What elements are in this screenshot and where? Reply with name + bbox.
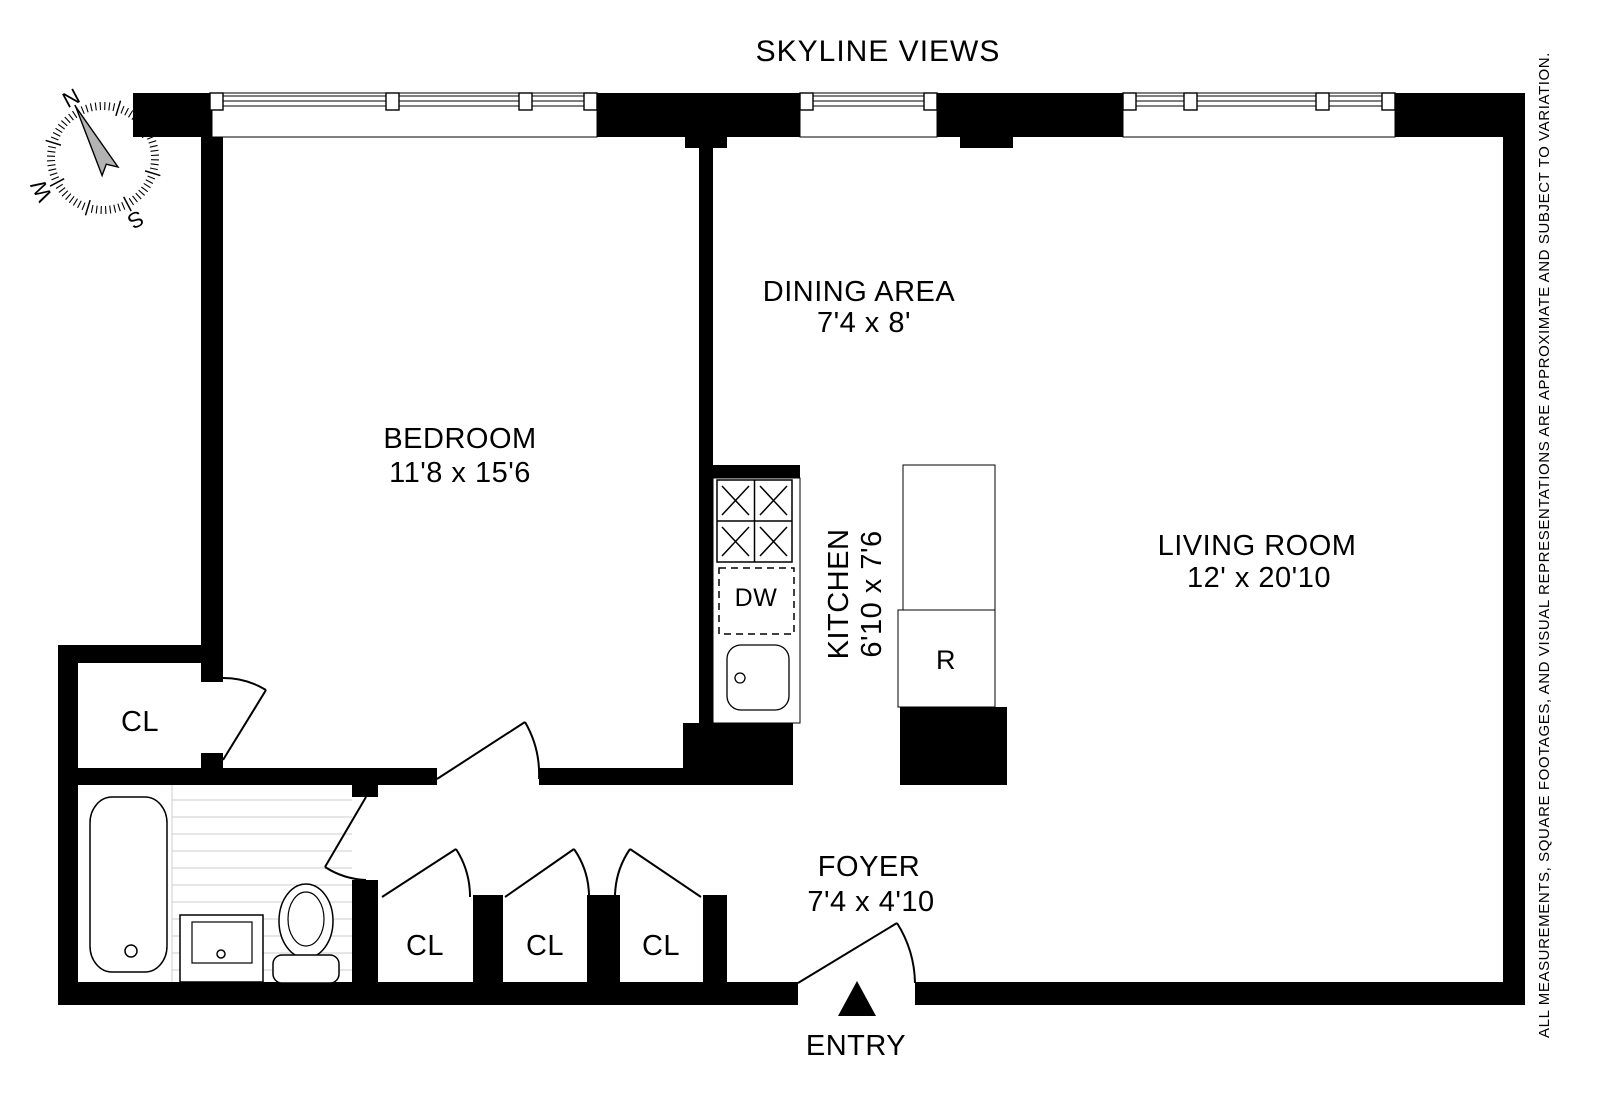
compass-tick <box>151 156 159 163</box>
foyer-closet-door-1 <box>382 849 470 897</box>
compass-tick <box>65 116 70 124</box>
compass-tick <box>93 206 100 214</box>
compass-tick <box>144 182 151 190</box>
wall-bottom-right <box>915 982 1525 1005</box>
foyer-closet-label-3: CL <box>642 930 680 962</box>
foyer-dims: 7'4 x 4'10 <box>807 886 934 918</box>
entry-arrow-icon <box>838 981 876 1016</box>
compass-tick <box>141 185 147 193</box>
wall-left-lower <box>58 645 78 1005</box>
compass-tick <box>93 103 99 111</box>
wall-kitchen-north <box>713 465 800 478</box>
window-living <box>1123 93 1395 137</box>
floor-plan-page: SKYLINE VIEWS <box>0 0 1600 1094</box>
foyer-closet-label-2: CL <box>526 930 564 962</box>
compass-tick <box>146 178 153 186</box>
compass-tick <box>69 113 74 121</box>
compass-tick <box>101 102 108 110</box>
compass-tick <box>117 204 122 212</box>
toilet-tank-icon <box>273 955 339 983</box>
compass-tick <box>56 126 63 134</box>
wall-pier-stub <box>960 137 1013 148</box>
refrigerator-label: R <box>936 645 956 675</box>
wall-kitchen-south <box>683 723 793 785</box>
compass-tick <box>149 139 157 144</box>
compass-tick <box>89 103 94 111</box>
compass-tick <box>106 102 113 110</box>
compass-tick <box>47 148 55 155</box>
stove-icon <box>717 480 792 562</box>
compass-tick <box>71 199 79 206</box>
wall-bottom-left <box>58 982 798 1005</box>
living-label: LIVING ROOM <box>1158 530 1357 562</box>
dining-label: DINING AREA <box>763 276 956 308</box>
compass-needle-icon <box>68 103 118 176</box>
compass-tick <box>81 106 85 113</box>
wall-closet-divider-2 <box>587 895 620 982</box>
foyer-label: FOYER <box>818 851 920 883</box>
compass-tick <box>148 174 155 182</box>
bedroom-dims: 11'8 x 15'6 <box>389 457 531 489</box>
wall-bedroom-south-east <box>539 768 699 785</box>
compass-tick <box>48 167 56 172</box>
compass-tick <box>47 153 55 160</box>
compass-tick <box>61 119 67 127</box>
wall-closet-jamb-bottom <box>201 753 223 770</box>
wall-right <box>1503 137 1525 1005</box>
bedroom-closet-door <box>223 678 266 760</box>
compass-tick <box>56 184 63 188</box>
page-title: SKYLINE VIEWS <box>756 35 1001 68</box>
kitchen-dims: 6'10 x 7'6 <box>856 530 888 657</box>
toilet-bowl-inner-icon <box>288 892 324 946</box>
compass-tick <box>64 194 72 200</box>
compass-tick <box>80 203 88 210</box>
wall-top-mid <box>597 93 800 137</box>
wall-top-pier <box>937 93 1123 137</box>
compass-tick <box>133 195 138 203</box>
compass-tick <box>151 148 159 154</box>
compass-rose-icon: N E S W <box>0 48 214 269</box>
compass-tick <box>88 205 95 213</box>
compass-tick <box>98 206 105 214</box>
wall-top-right-corner <box>1395 93 1525 137</box>
compass-tick <box>107 206 113 214</box>
wall-closet-top <box>58 645 223 663</box>
compass-tick <box>129 198 133 205</box>
wall-closet-divider-3 <box>703 895 727 982</box>
compass-tick <box>51 135 58 143</box>
vanity-drain-icon <box>217 950 225 958</box>
compass-tick <box>72 111 76 118</box>
compass-tick <box>112 205 117 213</box>
living-dims: 12' x 20'10 <box>1187 562 1331 594</box>
dishwasher-label: DW <box>735 584 778 612</box>
bathroom-fixtures <box>90 797 339 983</box>
wall-closet-jamb-top <box>201 663 223 682</box>
bathtub-drain-icon <box>125 945 137 957</box>
disclaimer-text: ALL MEASUREMENTS, SQUARE FOOTAGES, AND V… <box>1536 52 1553 1038</box>
wall-bath-door-jamb <box>352 785 378 797</box>
bedroom-label: BEDROOM <box>383 423 536 455</box>
wall-bedroom-west <box>201 137 223 663</box>
bedroom-closet-label: CL <box>121 706 159 738</box>
wall-bath-north <box>58 768 437 785</box>
compass-tick <box>48 143 56 150</box>
window-dining <box>800 93 937 137</box>
compass-tick <box>110 103 117 111</box>
compass-tick <box>53 130 60 138</box>
compass-north-label: N <box>58 83 84 113</box>
compass-tick <box>84 105 89 113</box>
foyer-closet-door-3 <box>615 849 701 897</box>
compass-tick <box>119 106 127 113</box>
floor-plan-svg: SKYLINE VIEWS <box>0 0 1600 1094</box>
compass-tick <box>50 172 58 177</box>
compass-tick <box>68 196 76 202</box>
compass-tick <box>97 102 103 110</box>
compass-south-label: S <box>123 205 148 234</box>
compass-tick <box>121 202 125 209</box>
kitchen-label: KITCHEN <box>823 529 855 660</box>
compass-tick <box>48 162 56 168</box>
wall-bath-east <box>352 880 378 982</box>
kitchen-sink-faucet-icon <box>735 673 745 683</box>
compass-tick <box>58 188 66 193</box>
compass-tick <box>58 123 64 131</box>
compass-tick <box>151 152 159 158</box>
entry-label: ENTRY <box>806 1030 906 1062</box>
compass-tick <box>139 189 145 197</box>
compass-tick <box>136 192 141 200</box>
wall-peninsula-south <box>900 707 1007 785</box>
entry-door <box>798 923 915 983</box>
compass-tick <box>61 191 69 196</box>
foyer-closet-label-1: CL <box>406 930 444 962</box>
compass-tick <box>51 176 58 180</box>
wall-closet-divider-1 <box>473 895 503 982</box>
compass-tick <box>151 161 159 168</box>
dining-dims: 7'4 x 8' <box>817 307 911 339</box>
compass-tick <box>150 144 158 149</box>
compass-tick <box>150 165 158 172</box>
wall-bedroom-kitchen-divider <box>699 137 713 723</box>
compass-west-label: W <box>25 176 57 206</box>
compass-tick <box>123 108 131 115</box>
compass-tick <box>75 201 83 208</box>
compass-tick <box>47 157 55 163</box>
foyer-closet-door-2 <box>505 849 589 897</box>
windows <box>210 93 1395 137</box>
bedroom-door <box>437 722 539 779</box>
compass-tick <box>102 206 108 214</box>
window-bedroom <box>210 93 597 137</box>
